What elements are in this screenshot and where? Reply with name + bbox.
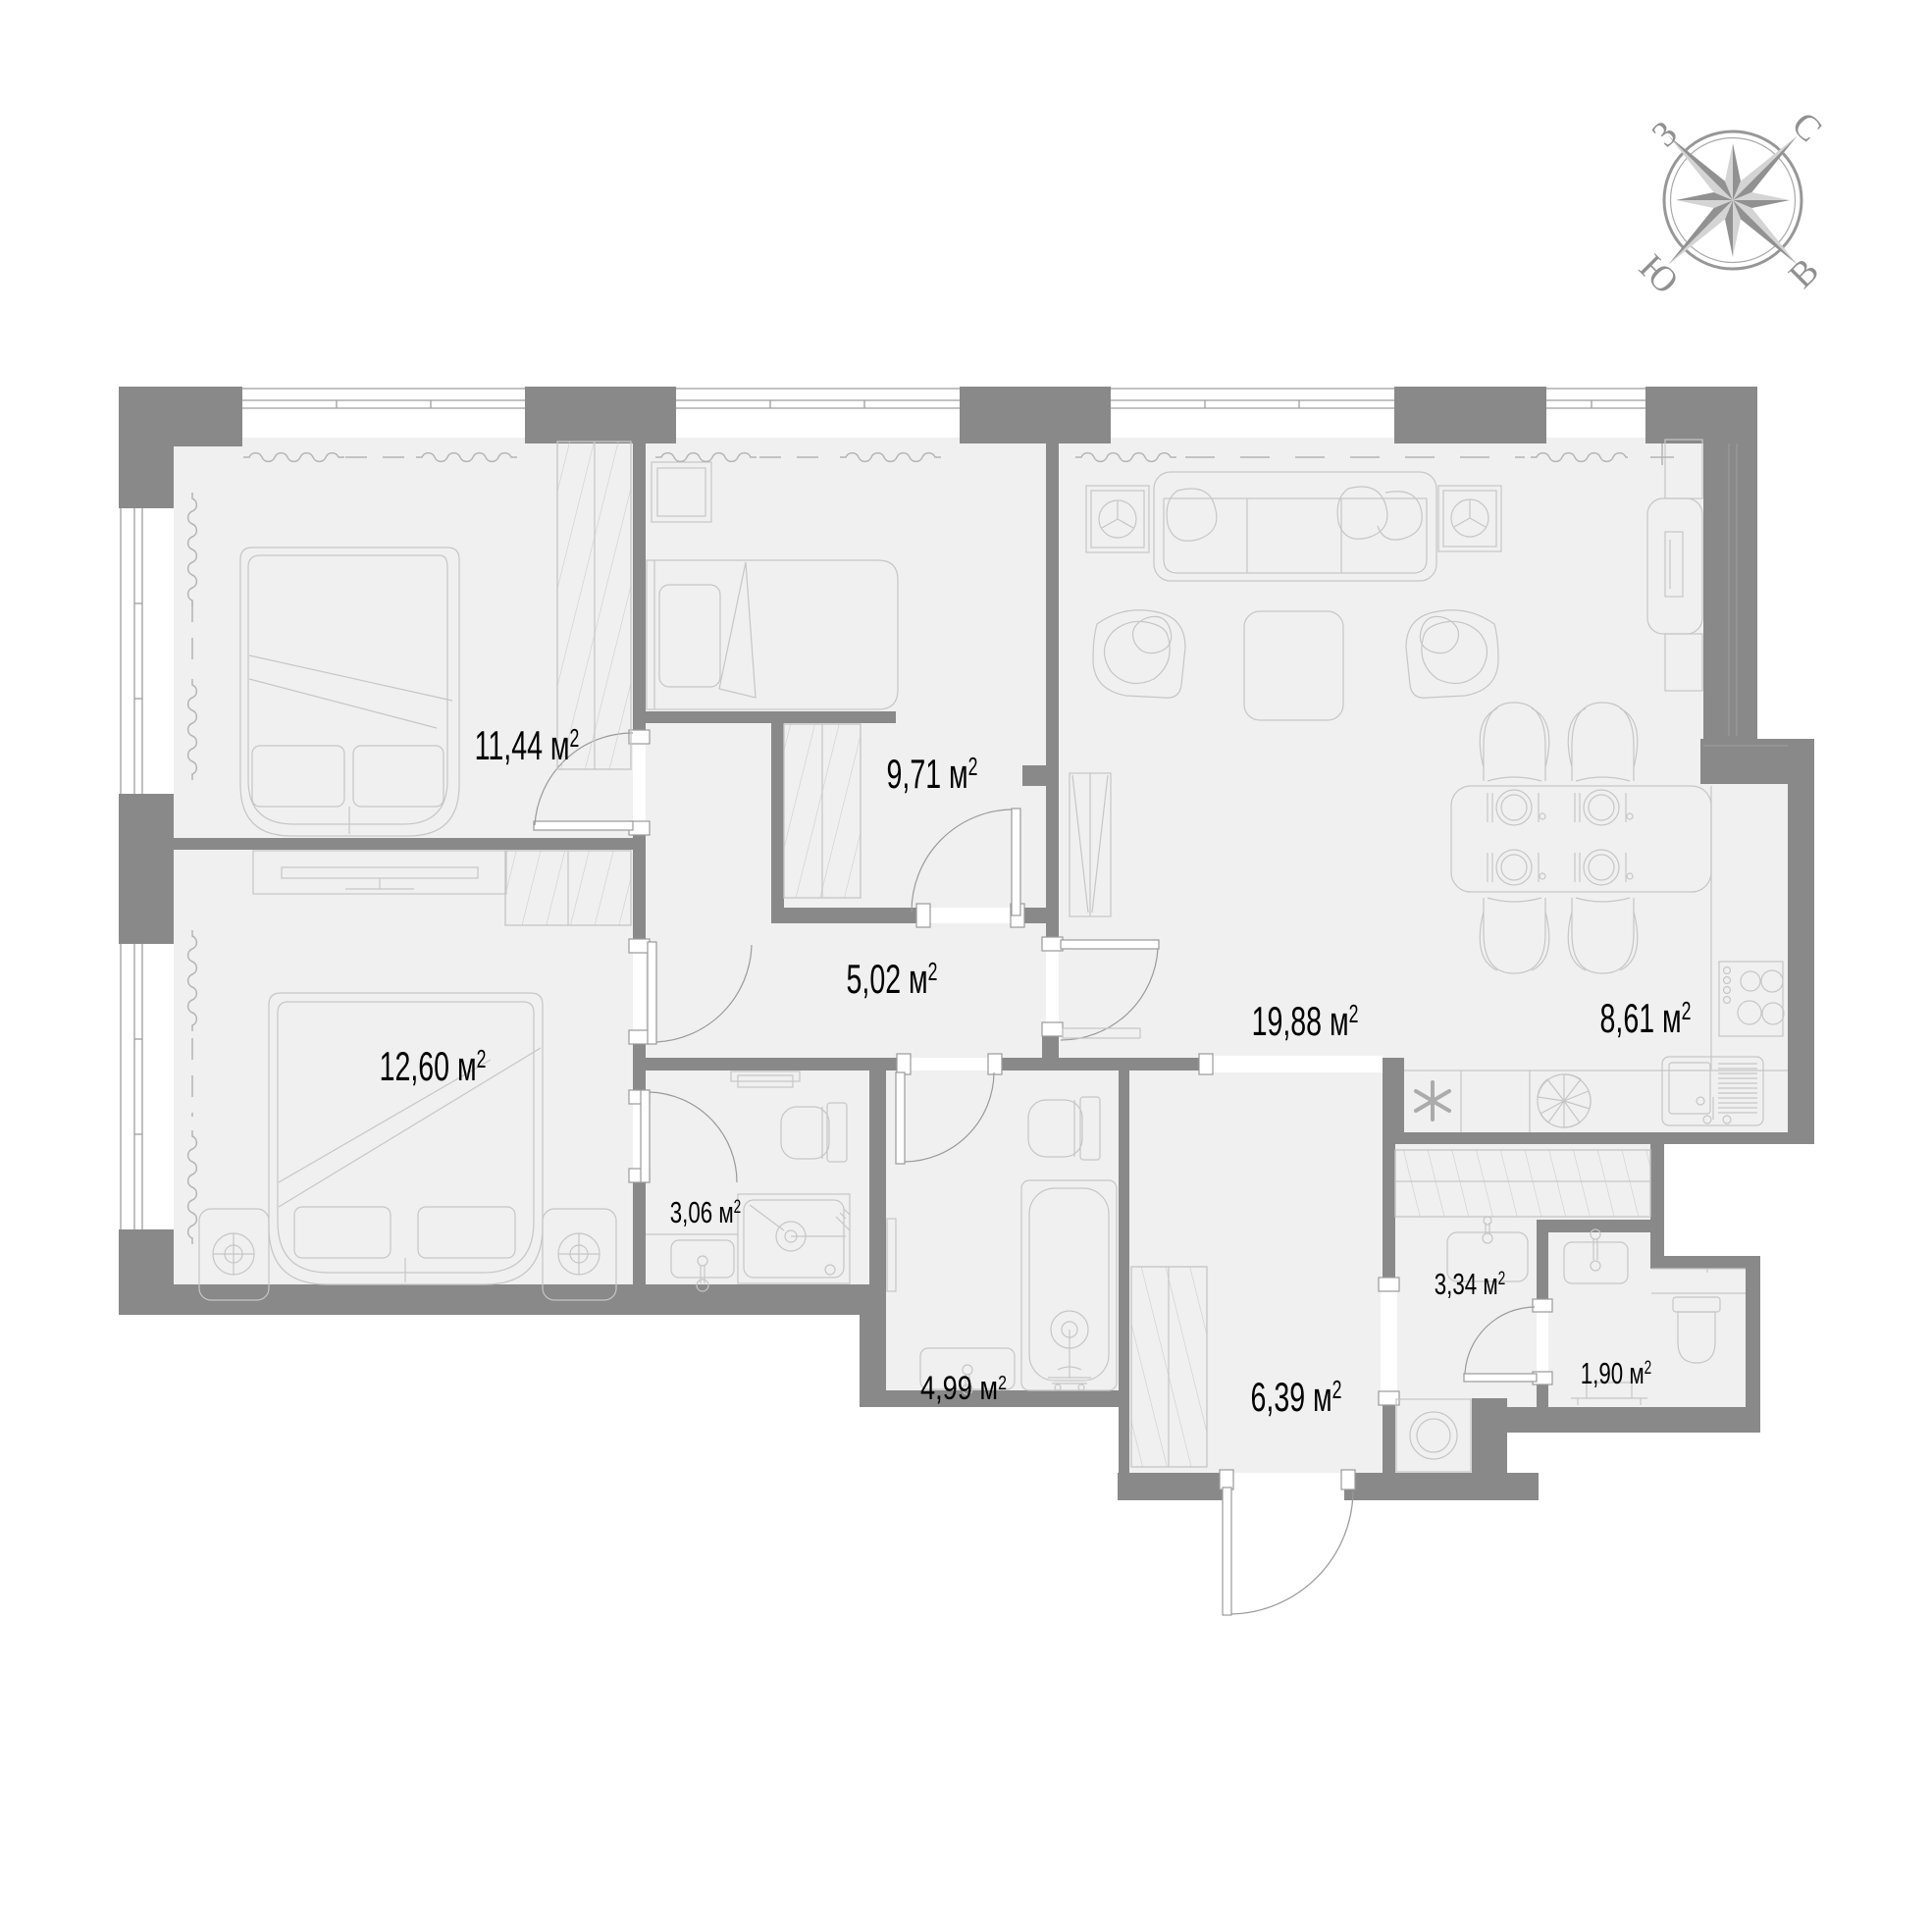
svg-text:9,71 м2: 9,71 м2 bbox=[887, 750, 978, 797]
svg-text:12,60 м2: 12,60 м2 bbox=[380, 1042, 487, 1089]
svg-text:8,61 м2: 8,61 м2 bbox=[1600, 994, 1692, 1041]
svg-text:4,99 м2: 4,99 м2 bbox=[920, 1369, 1007, 1407]
svg-text:1,90 м2: 1,90 м2 bbox=[1581, 1356, 1652, 1389]
svg-text:19,88 м2: 19,88 м2 bbox=[1252, 997, 1359, 1044]
svg-text:6,39 м2: 6,39 м2 bbox=[1251, 1373, 1342, 1420]
svg-text:3,34 м2: 3,34 м2 bbox=[1435, 1267, 1506, 1300]
svg-text:3,06 м2: 3,06 м2 bbox=[670, 1195, 742, 1228]
svg-text:5,02 м2: 5,02 м2 bbox=[847, 955, 938, 1002]
svg-text:11,44 м2: 11,44 м2 bbox=[475, 721, 580, 768]
